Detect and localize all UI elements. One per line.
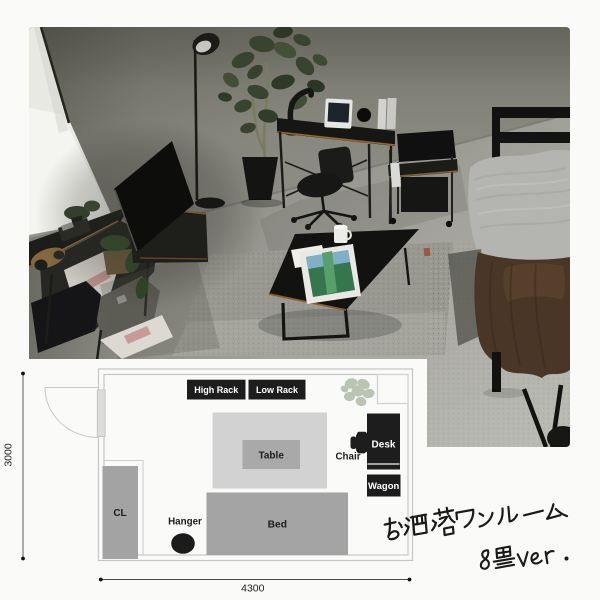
svg-text:Low Rack: Low Rack bbox=[256, 385, 299, 395]
svg-text:3000: 3000 bbox=[3, 443, 15, 467]
svg-text:High Rack: High Rack bbox=[194, 385, 239, 395]
svg-text:Bed: Bed bbox=[268, 519, 287, 530]
svg-text:Wagon: Wagon bbox=[368, 481, 400, 492]
svg-text:CL: CL bbox=[113, 508, 126, 519]
svg-text:Chair: Chair bbox=[335, 452, 360, 463]
svg-text:Table: Table bbox=[259, 451, 285, 462]
svg-text:4300: 4300 bbox=[241, 583, 265, 595]
svg-text:Desk: Desk bbox=[372, 440, 396, 451]
svg-text:Hanger: Hanger bbox=[168, 517, 202, 528]
